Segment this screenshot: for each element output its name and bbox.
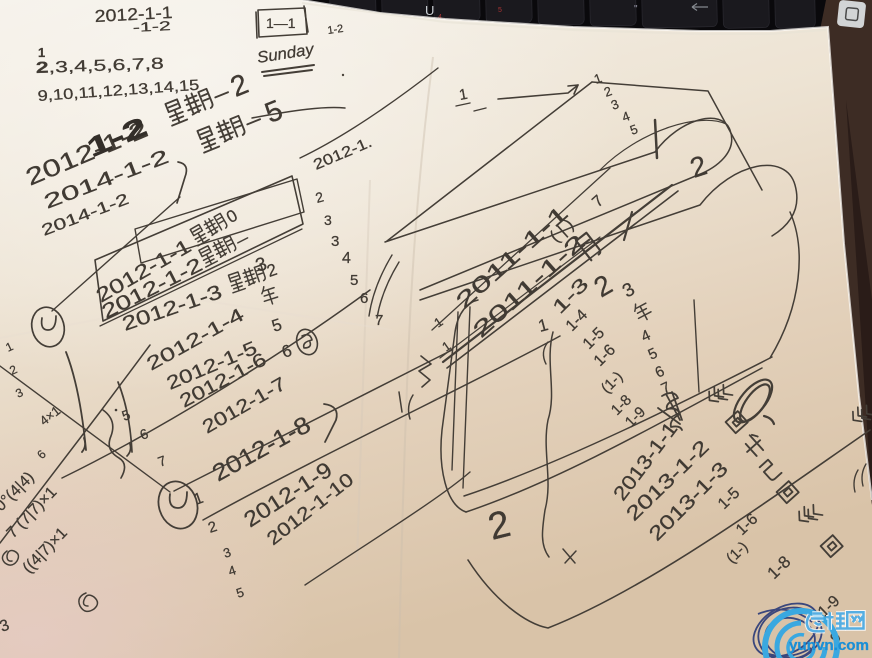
svg-text:": " <box>634 4 638 15</box>
svg-text:5: 5 <box>350 272 358 289</box>
svg-text:5: 5 <box>498 7 502 14</box>
svg-text:1-2: 1-2 <box>327 23 344 37</box>
svg-text:U: U <box>425 3 434 18</box>
svg-text:-1-2: -1-2 <box>132 18 171 35</box>
svg-text:yunvn.com: yunvn.com <box>789 637 869 654</box>
svg-text:4: 4 <box>342 250 351 267</box>
svg-text:1—1: 1—1 <box>266 15 296 31</box>
svg-text:3: 3 <box>331 233 339 250</box>
svg-text:1: 1 <box>38 45 45 60</box>
svg-text:7: 7 <box>375 312 383 329</box>
svg-text:3: 3 <box>324 212 332 228</box>
